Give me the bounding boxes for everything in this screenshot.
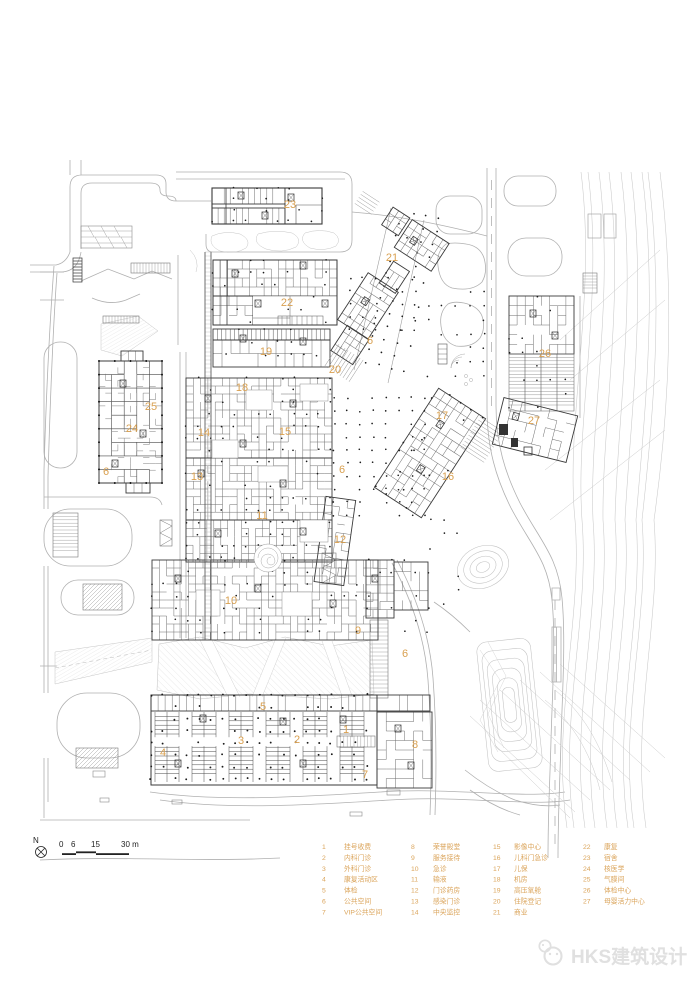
svg-text:机房: 机房 bbox=[514, 875, 528, 884]
svg-text:16: 16 bbox=[493, 855, 501, 862]
svg-text:24: 24 bbox=[126, 423, 138, 435]
svg-text:23: 23 bbox=[583, 855, 591, 862]
svg-text:体检: 体检 bbox=[344, 886, 358, 895]
svg-text:商业: 商业 bbox=[514, 907, 528, 916]
svg-text:17: 17 bbox=[493, 866, 501, 873]
svg-text:输液: 输液 bbox=[433, 875, 447, 884]
svg-text:感染门诊: 感染门诊 bbox=[433, 897, 460, 906]
svg-text:10: 10 bbox=[411, 866, 419, 873]
svg-text:3: 3 bbox=[238, 735, 244, 747]
svg-text:5: 5 bbox=[322, 888, 326, 895]
svg-text:气膜间: 气膜间 bbox=[604, 875, 625, 884]
svg-text:公共空间: 公共空间 bbox=[344, 897, 371, 906]
svg-text:9: 9 bbox=[411, 855, 415, 862]
svg-text:N: N bbox=[33, 836, 39, 845]
svg-text:26: 26 bbox=[583, 888, 591, 895]
svg-text:康复: 康复 bbox=[604, 842, 618, 851]
svg-text:13: 13 bbox=[191, 471, 203, 483]
svg-text:3: 3 bbox=[322, 866, 326, 873]
svg-text:11: 11 bbox=[256, 510, 267, 522]
svg-text:0: 0 bbox=[59, 840, 64, 849]
svg-text:16: 16 bbox=[442, 471, 454, 483]
svg-text:内科门诊: 内科门诊 bbox=[344, 853, 371, 862]
svg-text:26: 26 bbox=[539, 348, 551, 360]
svg-text:30 m: 30 m bbox=[121, 840, 139, 849]
svg-text:宿舍: 宿舍 bbox=[604, 853, 618, 862]
svg-text:外科门诊: 外科门诊 bbox=[344, 864, 371, 873]
svg-text:7: 7 bbox=[322, 909, 326, 916]
svg-text:体检中心: 体检中心 bbox=[604, 886, 631, 895]
svg-text:12: 12 bbox=[411, 888, 419, 895]
svg-text:11: 11 bbox=[411, 877, 418, 884]
svg-text:2: 2 bbox=[322, 855, 326, 862]
svg-text:门诊药房: 门诊药房 bbox=[433, 886, 460, 895]
svg-text:影像中心: 影像中心 bbox=[514, 842, 541, 851]
svg-text:25: 25 bbox=[145, 401, 157, 413]
svg-text:1: 1 bbox=[343, 724, 349, 736]
svg-text:18: 18 bbox=[236, 382, 248, 394]
svg-text:24: 24 bbox=[583, 866, 591, 873]
svg-text:荣誉殿堂: 荣誉殿堂 bbox=[433, 842, 460, 851]
svg-text:5: 5 bbox=[260, 701, 266, 713]
svg-text:6: 6 bbox=[103, 466, 109, 478]
svg-text:20: 20 bbox=[493, 899, 501, 906]
svg-text:核医学: 核医学 bbox=[604, 864, 625, 873]
svg-text:13: 13 bbox=[411, 899, 419, 906]
svg-text:25: 25 bbox=[583, 877, 591, 884]
svg-text:22: 22 bbox=[583, 844, 591, 851]
svg-text:14: 14 bbox=[411, 909, 419, 916]
svg-text:2: 2 bbox=[294, 734, 300, 746]
svg-text:8: 8 bbox=[411, 844, 415, 851]
svg-text:住院登记: 住院登记 bbox=[514, 897, 541, 906]
svg-text:15: 15 bbox=[279, 426, 291, 438]
svg-text:18: 18 bbox=[493, 877, 501, 884]
svg-text:21: 21 bbox=[493, 909, 501, 916]
svg-text:27: 27 bbox=[528, 415, 540, 427]
svg-text:17: 17 bbox=[436, 410, 448, 422]
svg-text:9: 9 bbox=[355, 625, 361, 637]
svg-text:22: 22 bbox=[281, 297, 293, 309]
svg-text:康复活动区: 康复活动区 bbox=[344, 875, 378, 884]
svg-text:母婴活力中心: 母婴活力中心 bbox=[604, 897, 645, 906]
svg-text:中央监控: 中央监控 bbox=[433, 907, 460, 916]
svg-text:15: 15 bbox=[91, 840, 100, 849]
svg-text:21: 21 bbox=[386, 252, 398, 264]
svg-text:6: 6 bbox=[339, 464, 345, 476]
svg-text:19: 19 bbox=[493, 888, 501, 895]
svg-text:14: 14 bbox=[198, 427, 210, 439]
svg-text:6: 6 bbox=[71, 840, 76, 849]
svg-text:高压氧舱: 高压氧舱 bbox=[514, 886, 541, 895]
svg-text:服务接待: 服务接待 bbox=[433, 853, 460, 862]
svg-text:4: 4 bbox=[160, 747, 166, 759]
svg-text:挂号收费: 挂号收费 bbox=[344, 842, 371, 851]
svg-text:12: 12 bbox=[334, 534, 346, 546]
svg-text:10: 10 bbox=[225, 595, 237, 607]
svg-text:8: 8 bbox=[412, 739, 418, 751]
svg-text:6: 6 bbox=[367, 335, 373, 347]
svg-text:19: 19 bbox=[260, 346, 272, 358]
svg-text:HKS建筑设计: HKS建筑设计 bbox=[571, 945, 687, 968]
svg-text:6: 6 bbox=[402, 648, 408, 660]
svg-text:6: 6 bbox=[322, 899, 326, 906]
svg-text:儿科门急诊: 儿科门急诊 bbox=[514, 853, 548, 862]
svg-text:20: 20 bbox=[329, 364, 341, 376]
svg-text:儿保: 儿保 bbox=[514, 864, 528, 873]
svg-text:15: 15 bbox=[493, 844, 501, 851]
svg-text:急诊: 急诊 bbox=[433, 864, 447, 873]
svg-text:1: 1 bbox=[322, 844, 326, 851]
svg-text:27: 27 bbox=[583, 899, 591, 906]
svg-text:23: 23 bbox=[284, 199, 296, 211]
svg-text:VIP公共空间: VIP公共空间 bbox=[344, 907, 382, 916]
svg-text:4: 4 bbox=[322, 877, 326, 884]
svg-text:7: 7 bbox=[362, 769, 368, 781]
